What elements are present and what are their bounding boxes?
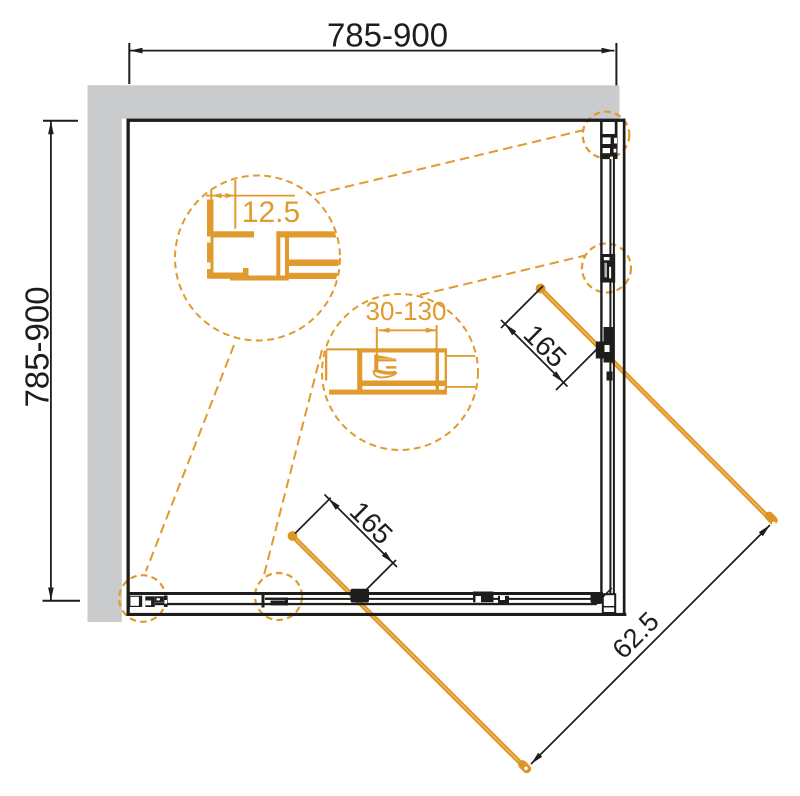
svg-text:12.5: 12.5 [242,196,300,229]
svg-text:785-900: 785-900 [18,286,55,407]
svg-text:30-130: 30-130 [366,296,447,326]
svg-text:785-900: 785-900 [327,17,448,54]
